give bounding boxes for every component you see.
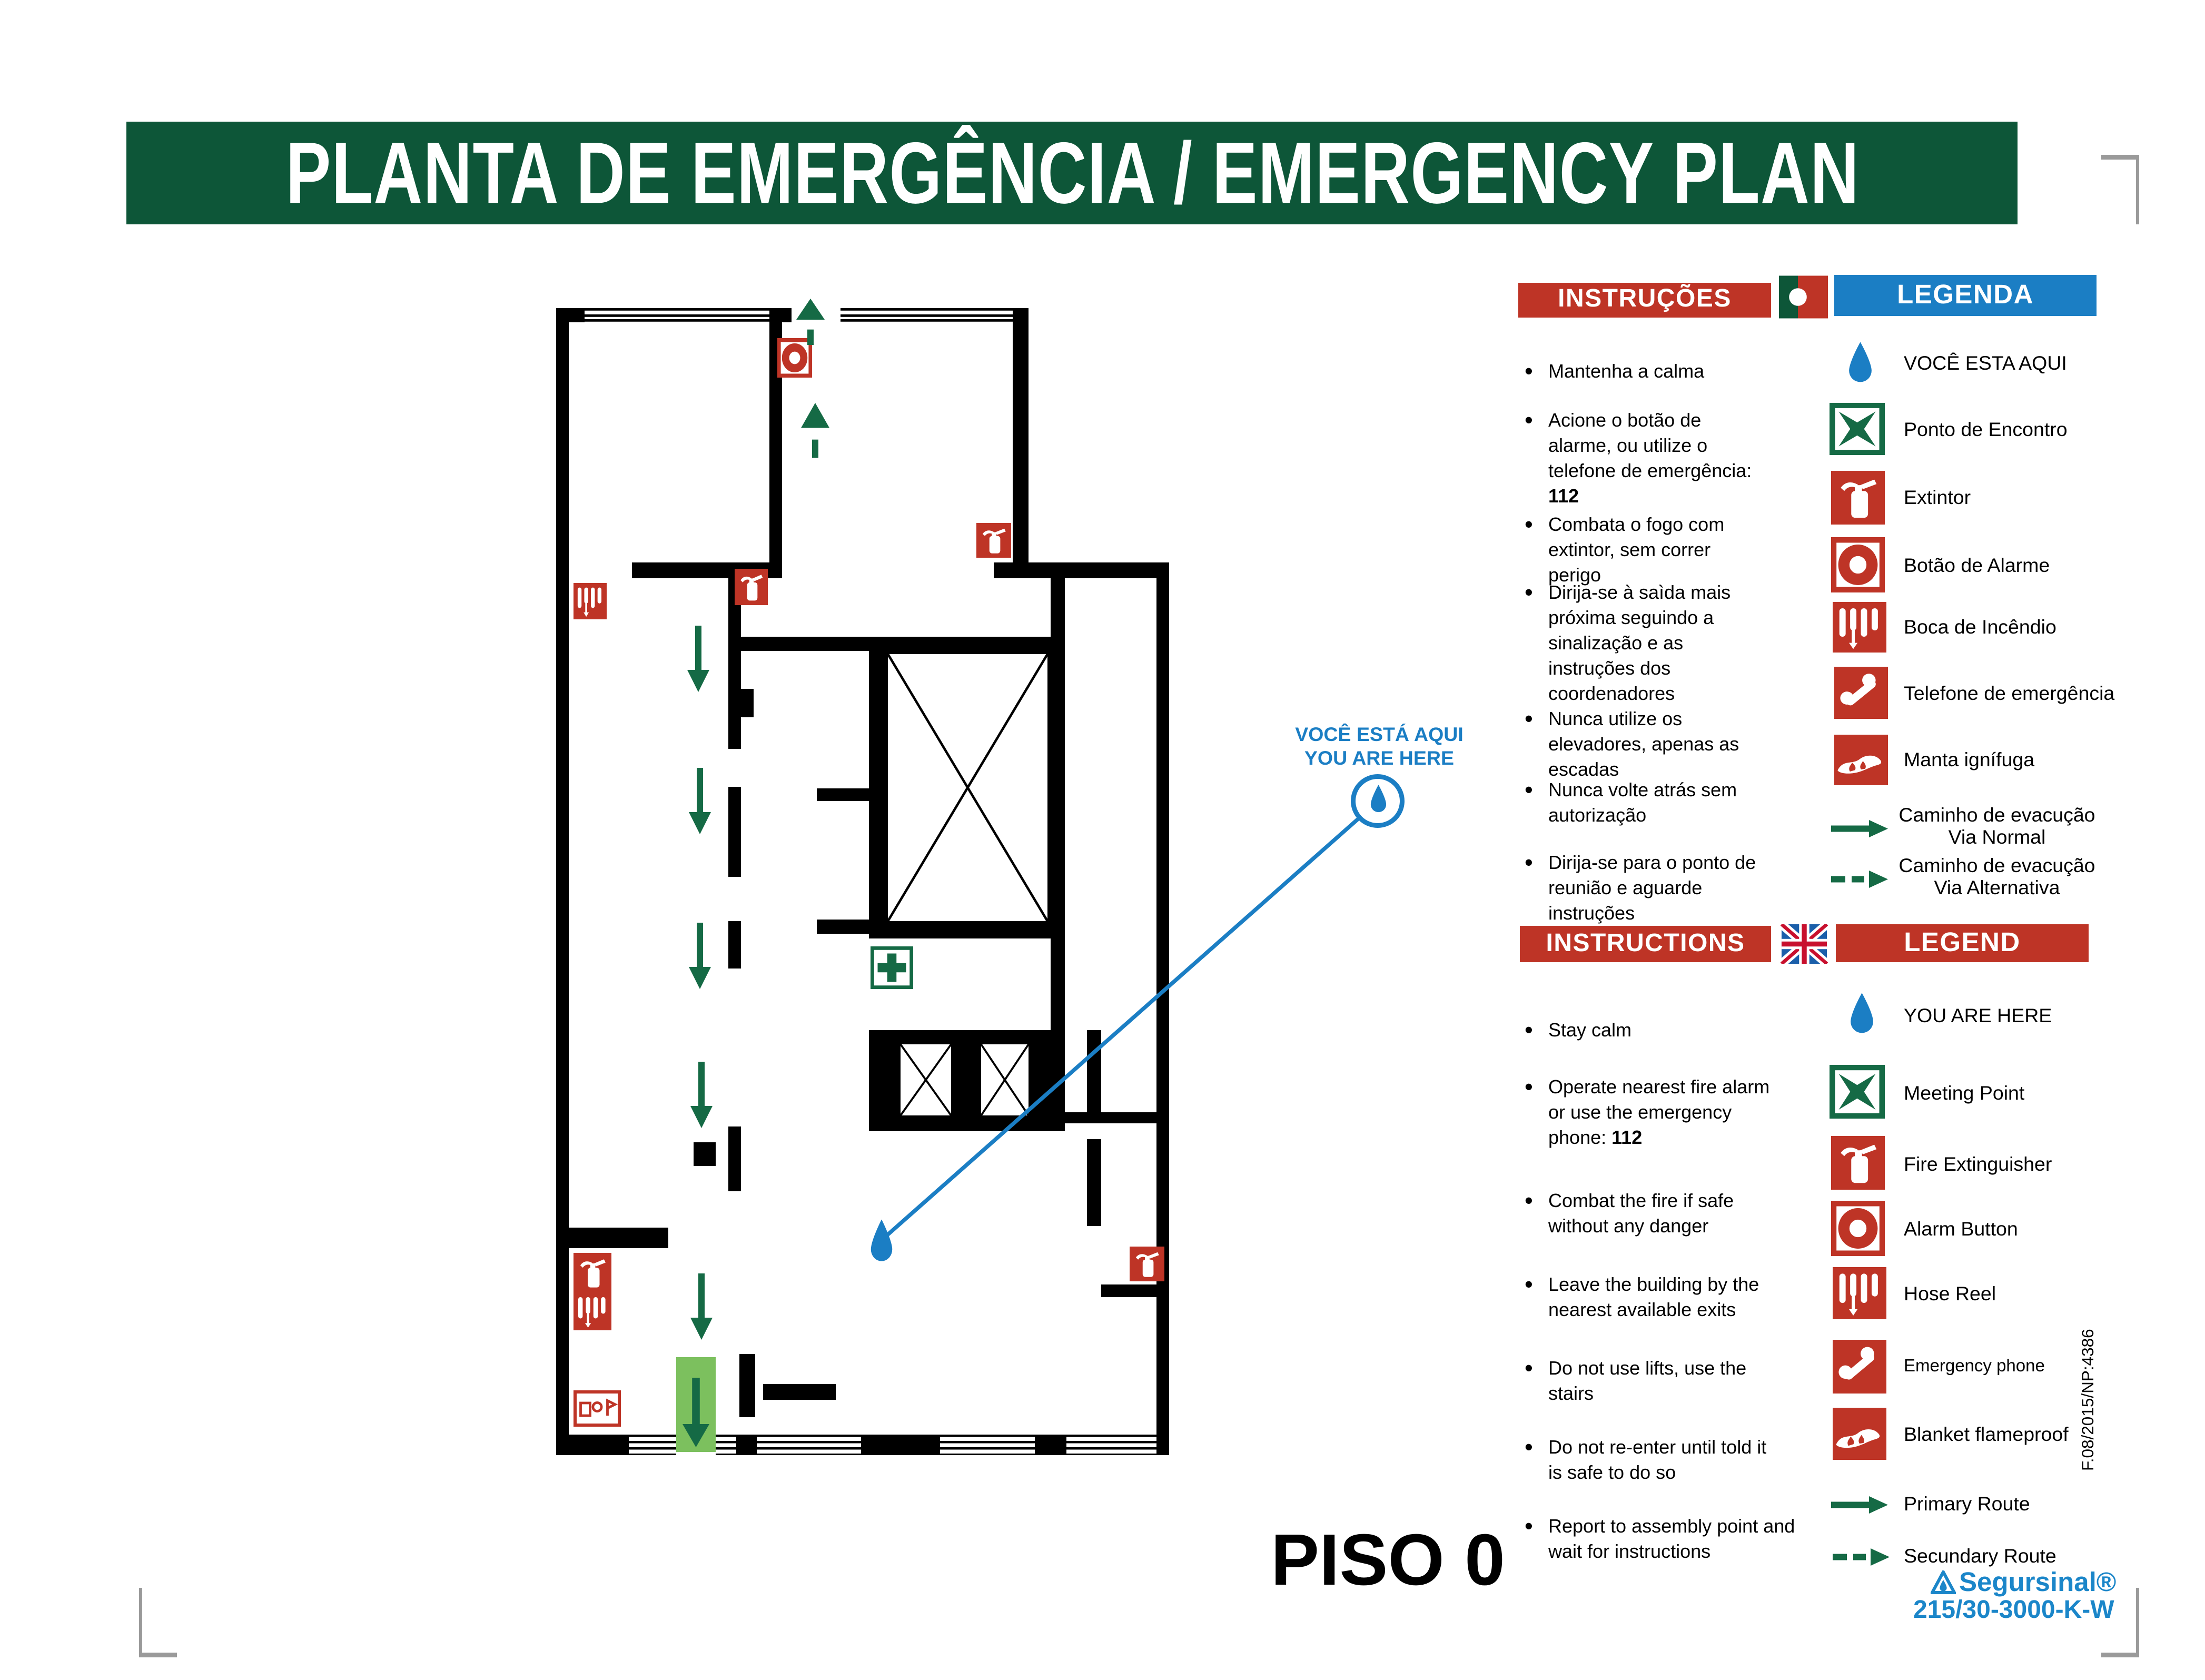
wall [817, 920, 869, 934]
wall [817, 788, 869, 801]
wall [1035, 1435, 1066, 1455]
wall [1156, 578, 1169, 1455]
wall [769, 308, 792, 322]
extinguisher-icon [735, 569, 768, 605]
wall [1101, 1284, 1160, 1297]
fire-panel-icon [574, 1390, 621, 1427]
instruction-item: Dirija-se para o ponto de reunião e agua… [1523, 852, 1773, 927]
title-banner: PLANTA DE EMERGÊNCIA / EMERGENCY PLAN [126, 122, 2018, 224]
drop-icon [867, 1218, 896, 1270]
you-are-here-circle-icon [1351, 774, 1405, 828]
secondary-route-arrow-icon [1833, 1548, 1890, 1566]
legend-label: Secundary Route [1904, 1545, 2056, 1567]
window-strip [585, 308, 769, 322]
wall [736, 1435, 757, 1455]
floor-plan [556, 308, 1180, 1455]
route-arrow-down-icon [689, 923, 711, 989]
primary-route-arrow-icon [1831, 820, 1888, 837]
you-are-here-callout: VOCÊ ESTÁ AQUI YOU ARE HERE [1273, 724, 1485, 770]
instruction-item: Report to assembly point and wait for in… [1523, 1515, 1799, 1566]
wall [1065, 1112, 1169, 1123]
hose-reel-icon [1833, 1267, 1886, 1319]
wall [556, 1435, 629, 1455]
legend-label: VOCÊ ESTA AQUI [1904, 352, 2067, 374]
callout-line-en: YOU ARE HERE [1273, 747, 1485, 770]
brand-logo: Segursinal® [1931, 1567, 2116, 1599]
instruction-item: Combata o fogo com extintor, sem correr … [1523, 513, 1763, 589]
emergency-phone-icon [1834, 667, 1888, 719]
legend-label: Meeting Point [1904, 1082, 2024, 1104]
secondary-route-arrow-icon [1831, 871, 1888, 888]
instruction-item: Do not use lifts, use the stairs [1523, 1357, 1776, 1408]
wall [1051, 1000, 1065, 1030]
extinguisher-icon [1130, 1247, 1164, 1281]
instruction-item: Leave the building by the nearest availa… [1523, 1273, 1784, 1324]
route-arrow-down-icon [689, 768, 711, 834]
hose-reel-icon [574, 1292, 611, 1330]
alarm-button-icon [1831, 537, 1885, 592]
meeting-point-icon [1830, 403, 1885, 455]
page-title: PLANTA DE EMERGÊNCIA / EMERGENCY PLAN [285, 123, 1859, 223]
instruction-item: Mantenha a calma [1523, 360, 1763, 386]
legend-en-header: LEGEND [1836, 924, 2089, 962]
instruction-item: Nunca volte atrás sem autorização [1523, 779, 1763, 829]
floor-label: PISO 0 [1258, 1517, 1518, 1602]
instruction-item: Do not re-enter until told it is safe to… [1523, 1436, 1784, 1487]
route-arrow-up-dashed-icon [796, 299, 825, 349]
meeting-point-icon [1830, 1065, 1885, 1119]
legend-label: Telefone de emergência [1904, 683, 2114, 705]
brand-flame-icon [1931, 1570, 1956, 1596]
route-arrow-down-icon [690, 1273, 713, 1340]
wall [994, 562, 1169, 578]
legend-label: Emergency phone [1904, 1357, 2045, 1376]
stairwell-shaft [885, 651, 1051, 924]
instruction-item: Dirija-se à saìda mais próxima seguindo … [1523, 581, 1773, 707]
wall [1013, 308, 1029, 578]
instruction-item: Acione o botão de alarme, ou utilize o t… [1523, 409, 1763, 510]
legend-label: Hose Reel [1904, 1283, 1996, 1305]
crop-mark [2101, 155, 2139, 224]
wall [1087, 1139, 1101, 1226]
first-aid-icon [871, 946, 913, 989]
instruction-item: Nunca utilize os elevadores, apenas as e… [1523, 708, 1773, 784]
instructions-en-header: INSTRUCTIONS [1520, 926, 1771, 962]
extinguisher-icon [574, 1253, 611, 1292]
elevator-shaft [978, 1041, 1032, 1119]
legend-label: Ponto de Encontro [1904, 419, 2068, 441]
window-strip [1066, 1435, 1156, 1455]
hose-reel-icon [574, 583, 607, 619]
legend-label: YOU ARE HERE [1904, 1005, 2052, 1027]
route-arrow-down-icon [683, 1378, 709, 1447]
wall [731, 689, 754, 717]
wall [861, 1435, 940, 1455]
route-arrow-up-dashed-icon [801, 403, 829, 463]
wall [556, 308, 569, 1455]
brand-model: 215/30-3000-K-W [1913, 1597, 2114, 1626]
extinguisher-icon [976, 523, 1011, 558]
instruction-item: Operate nearest fire alarm or use the em… [1523, 1076, 1776, 1152]
legend-label: Botão de Alarme [1904, 555, 2050, 577]
window-strip [716, 1435, 736, 1455]
wall [728, 787, 741, 877]
primary-route-arrow-icon [1831, 1496, 1888, 1514]
instructions-pt-header: INSTRUÇÕES [1518, 283, 1771, 318]
fire-blanket-icon [1833, 1408, 1886, 1460]
instruction-item: Stay calm [1523, 1019, 1795, 1044]
alarm-button-icon [1831, 1201, 1885, 1256]
portugal-flag-icon [1779, 275, 1828, 319]
wall [556, 1228, 668, 1248]
legend-label: Fire Extinguisher [1904, 1153, 2052, 1175]
instruction-item: Combat the fire if safe without any dang… [1523, 1190, 1776, 1240]
route-arrow-down-icon [687, 626, 709, 692]
crop-mark [139, 1588, 177, 1657]
legend-label: Caminho de evacuçãoVia Alternativa [1897, 855, 2097, 900]
elevator-shaft [897, 1041, 954, 1119]
wall [869, 637, 885, 938]
fire-extinguisher-icon [1831, 1136, 1885, 1190]
emergency-plan-page: PLANTA DE EMERGÊNCIA / EMERGENCY PLAN [0, 0, 2205, 1679]
legend-label: Boca de Incêndio [1904, 616, 2056, 638]
emergency-phone-icon [1833, 1340, 1886, 1394]
wall [728, 1126, 741, 1191]
wall [869, 924, 1065, 938]
legend-label: Blanket flameproof [1904, 1424, 2069, 1446]
legend-label: Alarm Button [1904, 1218, 2018, 1240]
wall [763, 1384, 836, 1400]
wall [739, 1354, 755, 1417]
legend-label: Primary Route [1904, 1493, 2030, 1515]
legend-label: Caminho de evacuçãoVia Normal [1897, 804, 2097, 849]
legend-label: Manta ignífuga [1904, 749, 2034, 771]
hose-reel-icon [1833, 602, 1886, 653]
uk-flag-icon [1779, 924, 1830, 964]
wall [728, 637, 1065, 651]
brand-name: Segursinal® [1959, 1567, 2116, 1599]
wall [728, 921, 741, 969]
fire-blanket-icon [1834, 735, 1888, 785]
route-arrow-down-icon [690, 1062, 713, 1128]
callout-line-pt: VOCÊ ESTÁ AQUI [1273, 724, 1485, 747]
you-are-here-drop-icon [1845, 338, 1875, 393]
legend-label: Extintor [1904, 487, 1971, 509]
wall [1087, 1030, 1101, 1112]
wall [694, 1142, 716, 1166]
window-strip [940, 1435, 1035, 1455]
document-code: F.08/2015/NP:4386 [2079, 1335, 2098, 1471]
legend-pt-header: LEGENDA [1834, 275, 2097, 316]
window-strip [841, 308, 1013, 322]
window-strip [757, 1435, 861, 1455]
you-are-here-drop-icon [1847, 989, 1877, 1044]
fire-extinguisher-icon [1831, 471, 1885, 525]
window-strip [629, 1435, 676, 1455]
